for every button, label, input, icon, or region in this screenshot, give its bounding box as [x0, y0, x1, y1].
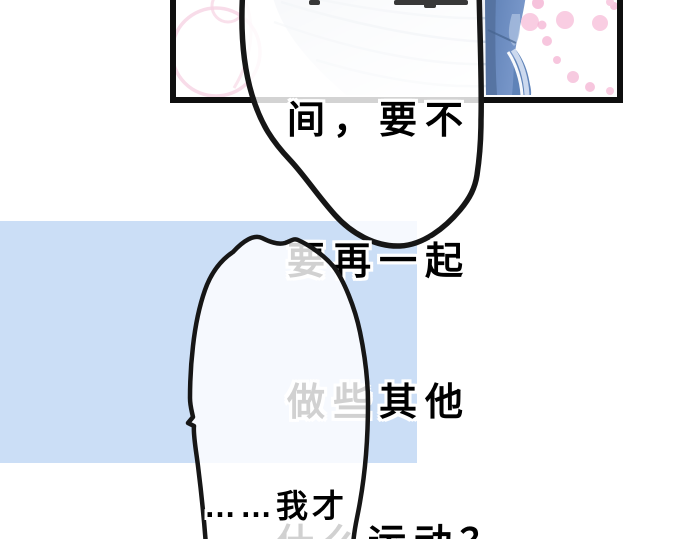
pink-dots-decoration — [521, 0, 617, 95]
speech-line: 间，要不 — [276, 98, 482, 145]
character-clothing — [485, 0, 531, 95]
speech-line: ……我才 — [204, 483, 364, 529]
clipped-text-fragment — [424, 0, 436, 8]
clipped-text-fragment — [309, 0, 320, 5]
speech-bubble-bottom-text: ……我才 是，谢谢 学姐能来 邀请我！ — [204, 391, 364, 539]
comic-page: 间，要不 要再一起 做些其他 什么运动？ ……我才 是，谢谢 学姐能来 邀请我！ — [0, 0, 690, 539]
